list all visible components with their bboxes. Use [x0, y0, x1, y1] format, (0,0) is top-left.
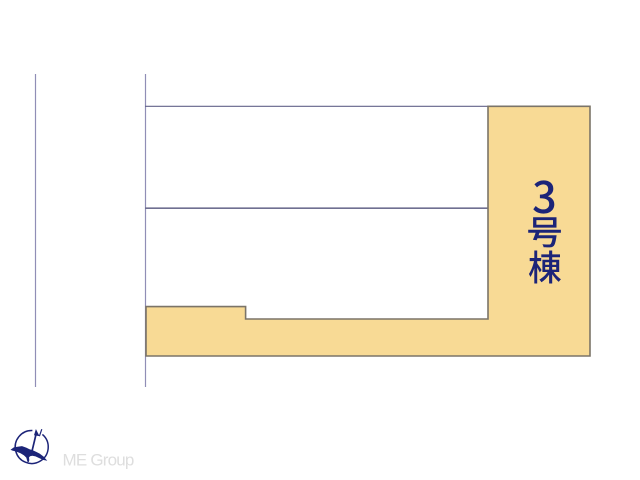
svg-text:ME Group: ME Group — [63, 451, 134, 470]
